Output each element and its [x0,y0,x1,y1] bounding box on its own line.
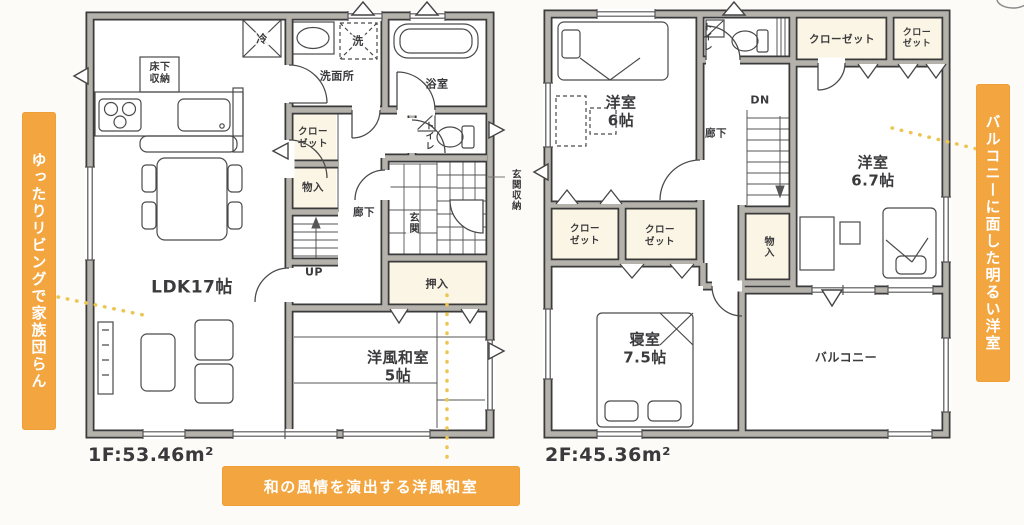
label-closet-1f: クロー ゼット [298,126,328,149]
right-arrow-icon [489,343,504,359]
up-arrow-icon [416,2,438,15]
room-label-senmenjo: 洗面所 [320,69,355,82]
room-label-toilet-1f: トイレ [424,121,433,151]
room-label-bathroom: 浴室 [426,77,449,90]
label-hallway-2f: 廊下 [705,128,727,141]
label-closet-b: クロー ゼット [645,224,675,247]
floorplan-page: LDK17帖 洋風和室 5帖 床下 収納 冷 洗 洗面所 浴室 クロー ゼット … [0,0,1024,525]
label-oshiire: 押入 [426,277,449,290]
room-label-washitsu: 洋風和室 5帖 [367,349,429,386]
label-underfloor-storage: 床下 収納 [150,62,171,86]
left-arrow-icon [534,164,548,180]
room-label-yoshitsu67: 洋室 6.7帖 [851,154,895,191]
room-label-toilet-2f: トイレ [702,22,711,52]
room-label-balcony: バルコニー [815,351,877,366]
label-closet-a: クロー ゼット [570,223,600,246]
floor1-area-text: 1F:53.46m² [88,444,214,466]
compass-mark [997,0,1024,8]
floor2-area-text: 2F:45.36m² [545,444,671,466]
label-genkan-storage: 玄関収納 [510,169,520,211]
room-label-yoshitsu6: 洋室 6帖 [605,94,636,131]
left-arrow-icon [74,68,88,84]
label-stairs-dn: DN [750,93,769,106]
up-arrow-icon [723,2,745,15]
room-label-genkan: 玄関 [406,212,418,234]
label-monoire-1f: 物入 [302,182,324,195]
label-stairs-up: UP [305,265,323,278]
up-arrow-icon [352,2,374,15]
label-closet-wide: クローゼット [809,34,875,47]
label-washer: 洗 [351,34,365,47]
callout-banner-right: バルコニーに面した明るい洋室 [976,84,1010,382]
label-hallway-1f: 廊下 [353,207,375,220]
label-closet-small: クロー ゼット [903,28,932,50]
room-label-shinshitsu: 寝室 7.5帖 [623,331,667,368]
right-arrow-icon [489,122,504,138]
label-monoire-2f: 物入 [762,236,772,258]
room-label-ldk: LDK17帖 [151,278,233,299]
callout-banner-left: ゆったりリビングで家族団らん [22,112,56,430]
label-fridge: 冷 [255,32,269,45]
callout-banner-bottom: 和の風情を演出する洋風和室 [222,466,520,506]
